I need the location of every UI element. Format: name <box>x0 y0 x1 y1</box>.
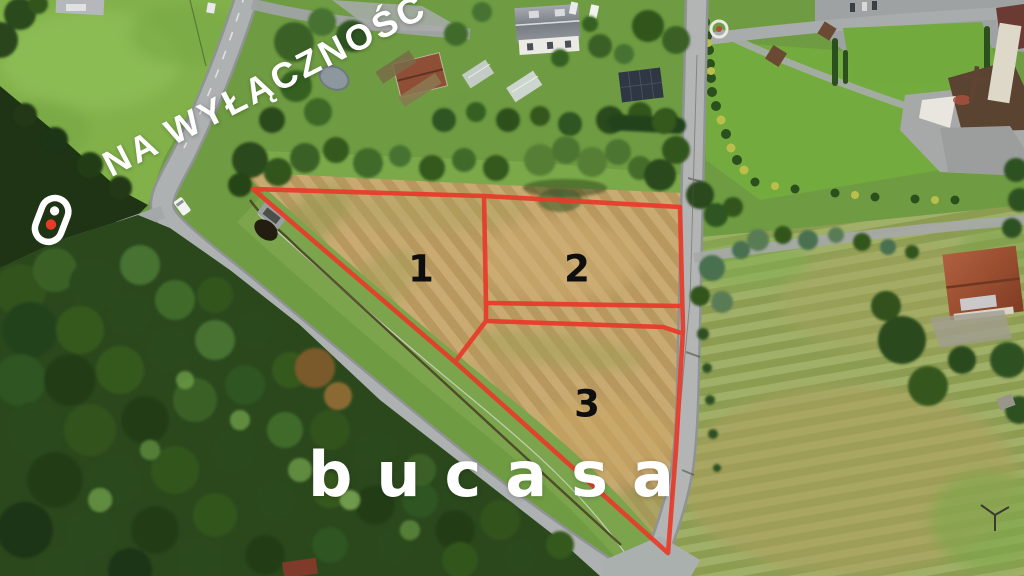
plot-number-3: 3 <box>574 383 600 426</box>
plot-number-1: 1 <box>408 248 434 291</box>
plot-divider-2-strip <box>486 303 679 306</box>
plot-number-2: 2 <box>564 248 590 291</box>
aerial-listing-photo: NA WYŁĄCZNOŚĆ 1 2 3 bucasa <box>0 0 1024 576</box>
brand-wordmark: bucasa <box>308 444 698 506</box>
solar-barn <box>618 68 663 103</box>
